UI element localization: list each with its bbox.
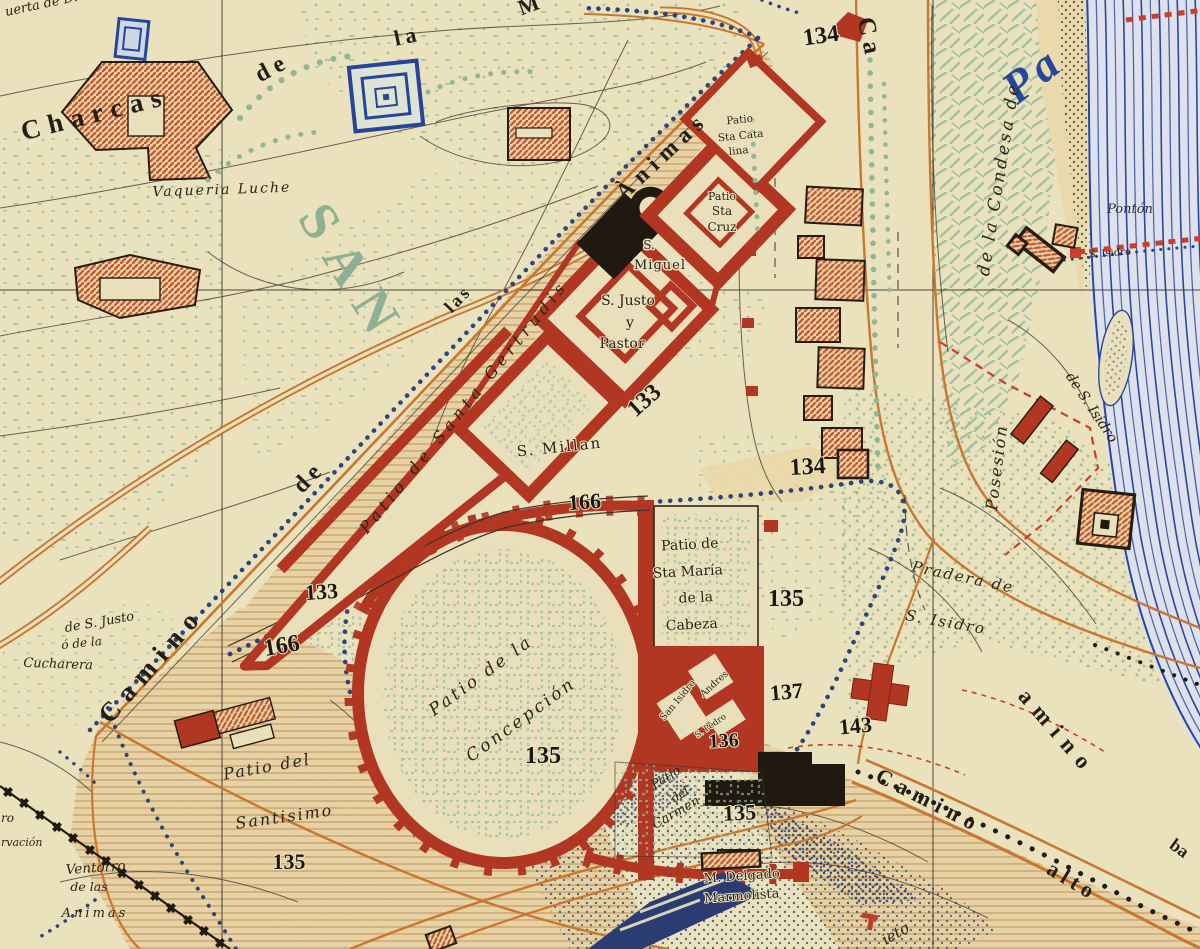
label-justo-1: S. Justo bbox=[601, 293, 655, 309]
label-maria-1: Patio de bbox=[661, 536, 719, 555]
label-justo-2: y bbox=[625, 315, 634, 331]
height-134-top: 134 bbox=[801, 21, 840, 52]
height-133-west: 133 bbox=[304, 578, 339, 605]
label-cruz-1: Patio bbox=[708, 190, 736, 203]
height-135-concepcion: 135 bbox=[525, 743, 561, 769]
blue-structure-large bbox=[349, 61, 423, 132]
height-135-carmen: 135 bbox=[722, 799, 756, 826]
label-ponton: Pontón bbox=[1106, 202, 1153, 217]
label-maria-3: de la bbox=[678, 589, 713, 607]
label-catalina-3: lina bbox=[728, 144, 749, 158]
label-rvacion-fragment: rvación bbox=[1, 836, 42, 849]
label-ventorro-3: Animas bbox=[61, 906, 129, 921]
height-143: 143 bbox=[838, 712, 873, 740]
label-ro-fragment: ro bbox=[1, 811, 14, 825]
height-137: 137 bbox=[769, 678, 804, 706]
label-maria-4: Cabeza bbox=[665, 616, 718, 635]
label-cruz-3: Cruz bbox=[708, 220, 737, 234]
historic-map-canvas[interactable]: uerta de D. M ro rvación ba ieto Pa Char… bbox=[0, 0, 1200, 949]
delgado-workshop bbox=[702, 850, 761, 869]
height-135-southwest: 135 bbox=[273, 849, 306, 874]
height-166-mid: 166 bbox=[567, 488, 602, 515]
label-miguel-1: S. bbox=[643, 238, 655, 252]
label-miguel-2: Miguel bbox=[634, 258, 686, 273]
height-135-east: 135 bbox=[768, 586, 804, 612]
label-ventorro-2: de las bbox=[70, 879, 107, 894]
map-svg: uerta de D. M ro rvación ba ieto Pa Char… bbox=[0, 0, 1200, 949]
height-136: 136 bbox=[708, 729, 739, 753]
label-justo-3: Pastor bbox=[599, 336, 644, 352]
label-cruz-2: Sta bbox=[712, 204, 732, 218]
height-134-mid: 134 bbox=[789, 453, 826, 481]
blue-structure-small bbox=[115, 19, 149, 60]
label-cucharera-3: Cucharera bbox=[23, 656, 93, 673]
